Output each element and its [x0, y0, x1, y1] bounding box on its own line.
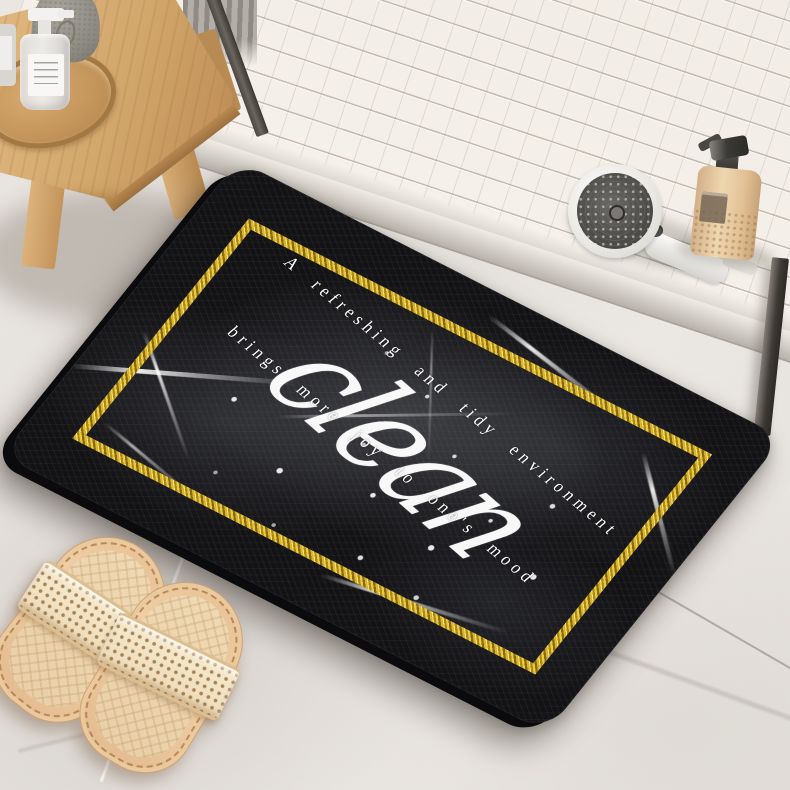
bathroom-scene: A refreshing and tidy environment clean …: [0, 0, 790, 790]
